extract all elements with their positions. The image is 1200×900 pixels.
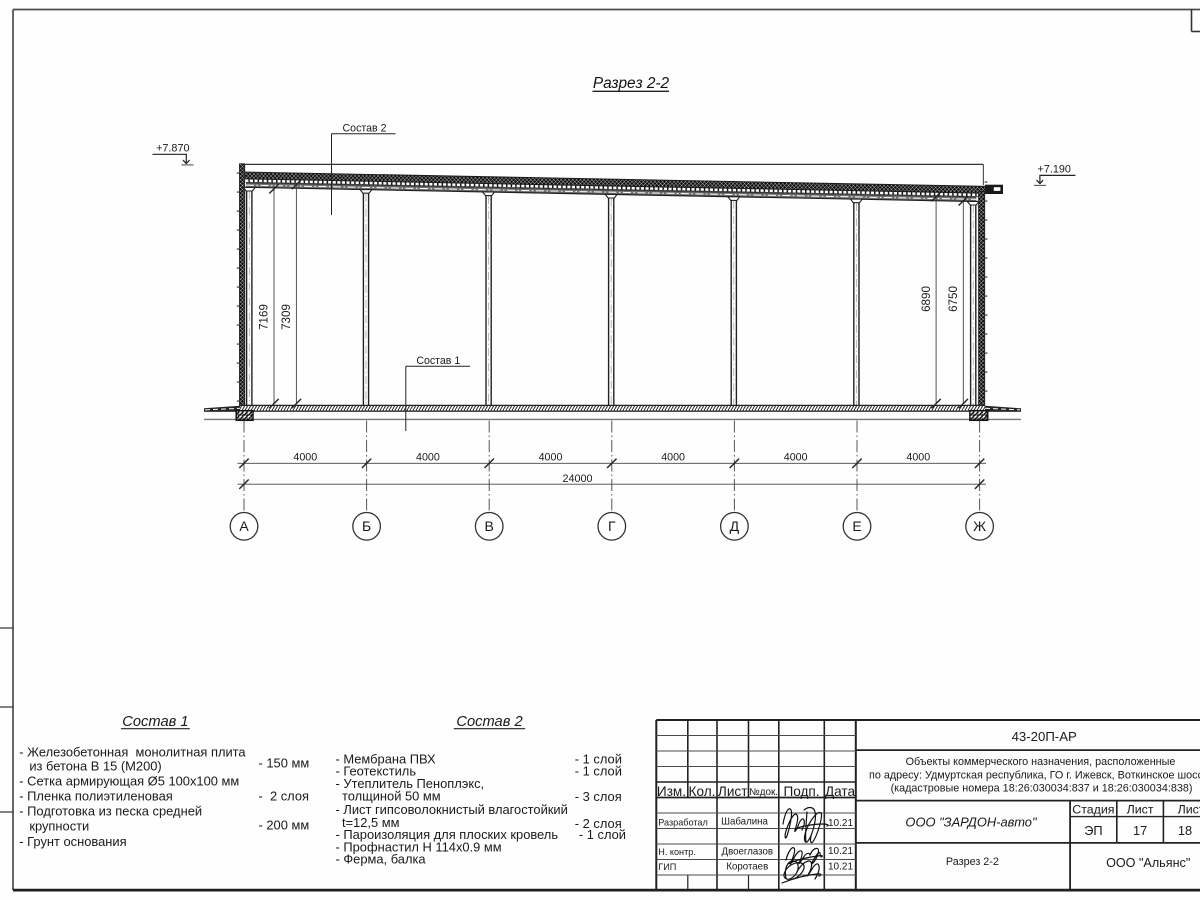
svg-text:Г: Г: [608, 518, 616, 534]
svg-text:7309: 7309: [280, 304, 293, 330]
svg-text:- Подготовка из песка средней: - Подготовка из песка средней: [19, 804, 202, 819]
svg-text:4000: 4000: [784, 452, 808, 464]
svg-text:Двоеглазов: Двоеглазов: [722, 847, 774, 858]
svg-text:- Грунт основания: - Грунт основания: [19, 834, 126, 849]
svg-text:№док.: №док.: [749, 787, 778, 798]
svg-text:Разрез 2-2: Разрез 2-2: [593, 75, 670, 92]
svg-text:4000: 4000: [539, 452, 563, 464]
svg-text:ЭП: ЭП: [1084, 823, 1102, 838]
svg-text:- 200 мм: - 200 мм: [259, 817, 310, 832]
svg-text:10.21: 10.21: [828, 861, 853, 872]
svg-text:Состав 2: Состав 2: [343, 122, 387, 134]
svg-text:Лист: Лист: [1127, 803, 1154, 817]
svg-text:Дата: Дата: [825, 784, 856, 799]
svg-text:Разрез 2-2: Разрез 2-2: [946, 856, 999, 868]
svg-text:6890: 6890: [920, 286, 933, 312]
svg-text:(кадастровые номера 18:26:0300: (кадастровые номера 18:26:030034:837 и 1…: [891, 783, 1193, 795]
svg-text:4000: 4000: [906, 452, 930, 464]
svg-text:10.21: 10.21: [828, 818, 853, 829]
svg-text:Разработал: Разработал: [658, 818, 708, 828]
svg-text:Состав 1: Состав 1: [416, 355, 460, 367]
svg-text:крупности: крупности: [19, 819, 89, 834]
svg-text:Б: Б: [362, 518, 371, 534]
svg-text:Подп.: Подп.: [783, 784, 819, 799]
svg-text:6750: 6750: [947, 286, 960, 312]
svg-text:4000: 4000: [293, 452, 317, 464]
svg-text:43-20П-АР: 43-20П-АР: [1012, 729, 1077, 744]
svg-text:10.21: 10.21: [828, 846, 853, 857]
svg-text:18: 18: [1178, 823, 1192, 838]
svg-text:4000: 4000: [416, 452, 440, 464]
svg-text:- 1 слой: - 1 слой: [575, 764, 622, 779]
svg-text:из бетона В 15 (М200): из бетона В 15 (М200): [19, 759, 161, 774]
svg-text:Ж: Ж: [973, 518, 986, 534]
svg-text:Шабалина: Шабалина: [721, 817, 768, 828]
svg-text:4000: 4000: [661, 452, 685, 464]
svg-text:по адресу: Удмуртская республи: по адресу: Удмуртская республика, ГО г. …: [869, 769, 1200, 781]
svg-text:Стадия: Стадия: [1072, 803, 1114, 817]
svg-text:ООО "ЗАРДОН-авто": ООО "ЗАРДОН-авто": [905, 814, 1038, 829]
svg-text:Состав 1: Состав 1: [122, 714, 188, 730]
svg-text:А: А: [239, 518, 249, 534]
svg-text:24000: 24000: [562, 473, 592, 485]
svg-text:Лист: Лист: [718, 784, 748, 799]
svg-text:В: В: [485, 518, 494, 534]
svg-text:ГИП: ГИП: [658, 862, 676, 872]
svg-text:- 150 мм: - 150 мм: [259, 756, 310, 771]
svg-text:Кол.: Кол.: [689, 784, 716, 799]
svg-text:17: 17: [1133, 823, 1147, 838]
svg-text:Листов: Листов: [1178, 803, 1200, 817]
svg-text:- Ферма, балка: - Ферма, балка: [336, 852, 427, 867]
svg-text:+7.190: +7.190: [1038, 163, 1071, 175]
svg-text:- Железобетонная монолитная п: - Железобетонная монолитная плита: [19, 744, 246, 759]
svg-text:- 2 слоя: - 2 слоя: [259, 788, 309, 803]
svg-text:Изм.: Изм.: [657, 784, 686, 799]
svg-text:ООО "Альянс": ООО "Альянс": [1106, 856, 1190, 870]
svg-text:Н. контр.: Н. контр.: [658, 847, 696, 857]
svg-text:Е: Е: [852, 518, 861, 534]
svg-text:Д: Д: [730, 518, 740, 534]
svg-text:- Сетка армирующая Ø5 100х100: - Сетка армирующая Ø5 100х100 мм: [19, 773, 239, 788]
svg-text:Коротаев: Коротаев: [726, 862, 768, 873]
svg-text:+7.870: +7.870: [156, 142, 189, 154]
svg-text:Объекты коммерческого назначен: Объекты коммерческого назначения, распол…: [906, 756, 1176, 768]
svg-text:7169: 7169: [258, 304, 271, 330]
svg-text:- Пленка полиэтиленовая: - Пленка полиэтиленовая: [19, 788, 172, 803]
svg-text:- 3 слоя: - 3 слоя: [575, 789, 622, 804]
svg-text:- 1 слой: - 1 слой: [579, 827, 626, 842]
svg-text:Состав 2: Состав 2: [456, 714, 522, 730]
